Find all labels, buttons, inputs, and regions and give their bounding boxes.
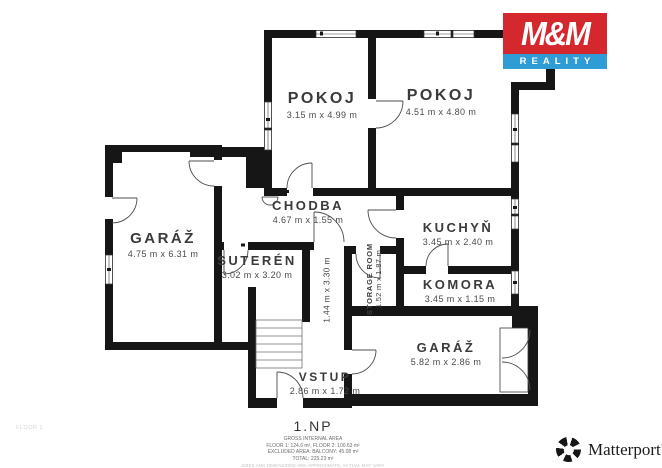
floorplan-drawing: [0, 0, 662, 468]
floorplan-page: POKOJ 3.15 m x 4.99 m POKOJ 4.51 m x 4.8…: [0, 0, 662, 468]
room-dims: 1.52 m x 1.87 m: [374, 243, 383, 315]
room-name: STORAGE ROOM: [365, 243, 374, 315]
mm-reality-logo: M&M REALITY: [503, 13, 607, 69]
matterport-wordmark: Matterport™: [588, 440, 662, 460]
mm-logo-bottom: REALITY: [503, 54, 607, 69]
windows: [106, 31, 519, 295]
mm-logo-top: M&M: [503, 13, 607, 54]
matterport-icon: [553, 434, 585, 466]
area-summary: GROSS INTERNAL AREA FLOOR 1: 124.6 m², F…: [203, 436, 423, 468]
area-line: TOTAL: 225.23 m²: [203, 456, 423, 463]
garage-door: [500, 328, 530, 392]
matterport-branding: Matterport™: [556, 437, 662, 462]
stairs: [256, 320, 302, 368]
disclaimer: SIZES AND DIMENSIONS ARE APPROXIMATE, AC…: [203, 463, 423, 468]
mm-logo-text: M&M: [521, 17, 589, 50]
corner-floor-label: FLOOR 1: [16, 425, 43, 431]
walls: [105, 30, 556, 408]
floor-title: 1.NP: [253, 418, 373, 434]
reality-logo-text: REALITY: [515, 57, 596, 67]
hallway-dims-label: 1.44 m x 3.30 m: [297, 260, 357, 320]
